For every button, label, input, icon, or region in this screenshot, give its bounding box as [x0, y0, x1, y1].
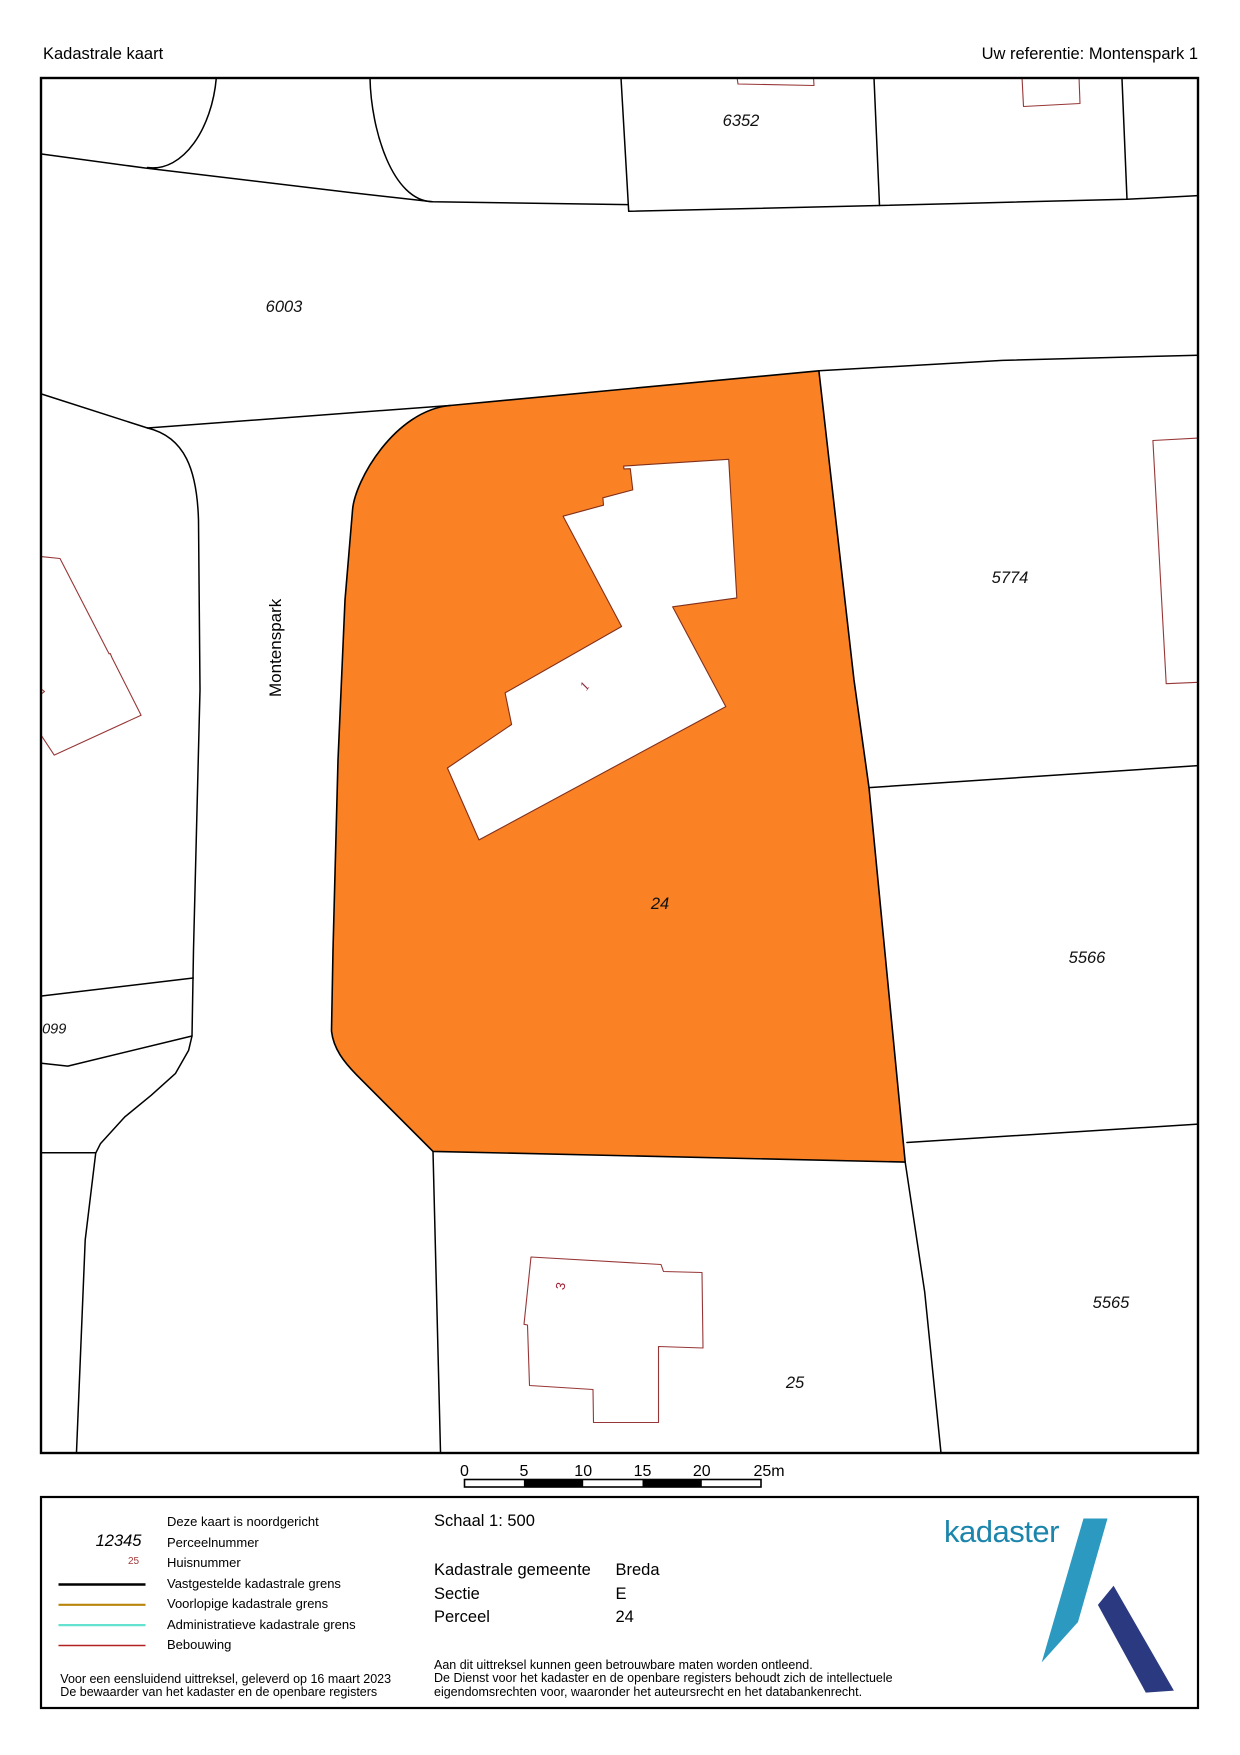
svg-text:25m: 25m [753, 1463, 784, 1480]
svg-text:10: 10 [574, 1463, 592, 1480]
svg-text:kadaster: kadaster [944, 1514, 1059, 1549]
svg-text:6352: 6352 [723, 112, 760, 130]
svg-text:20: 20 [693, 1463, 711, 1480]
svg-text:6099: 6099 [34, 1022, 66, 1038]
svg-text:15: 15 [634, 1463, 652, 1480]
svg-text:5: 5 [519, 1463, 528, 1480]
svg-text:6003: 6003 [266, 298, 304, 316]
svg-text:24: 24 [650, 895, 669, 913]
svg-text:5565: 5565 [1093, 1294, 1131, 1312]
svg-text:Montenspark: Montenspark [266, 598, 285, 697]
svg-text:0: 0 [460, 1463, 469, 1480]
svg-text:5566: 5566 [1069, 949, 1107, 967]
svg-text:25: 25 [785, 1374, 805, 1392]
svg-text:3: 3 [552, 1281, 568, 1291]
svg-text:5774: 5774 [992, 569, 1029, 587]
